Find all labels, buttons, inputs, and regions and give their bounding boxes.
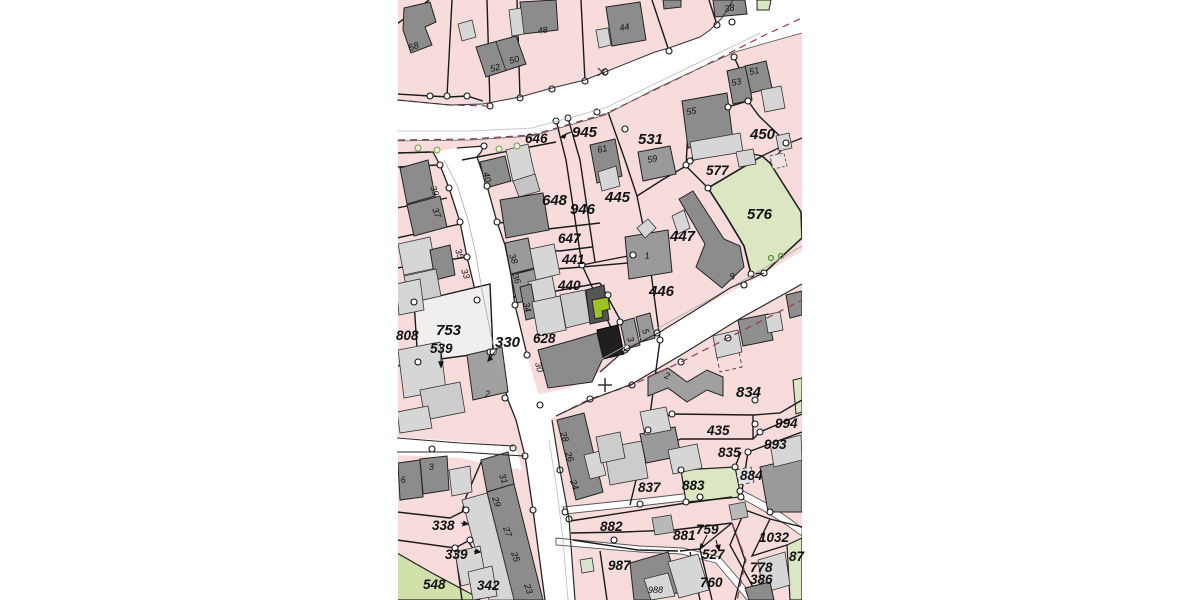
svg-text:441: 441 [561,252,585,267]
svg-text:539: 539 [430,341,453,356]
svg-text:577: 577 [706,163,730,178]
svg-text:3: 3 [428,462,434,472]
svg-text:883: 883 [682,478,705,493]
svg-text:837: 837 [638,480,662,495]
svg-text:342: 342 [477,578,500,593]
svg-text:44: 44 [619,21,631,33]
svg-text:753: 753 [436,322,462,339]
svg-text:61: 61 [596,143,608,155]
svg-text:338: 338 [432,518,455,533]
svg-text:946: 946 [570,201,596,218]
svg-text:48: 48 [537,25,548,36]
svg-text:759: 759 [696,522,719,537]
svg-text:834: 834 [736,384,762,401]
svg-text:576: 576 [747,206,773,223]
svg-text:882: 882 [600,519,623,534]
svg-text:386: 386 [750,572,773,587]
svg-text:760: 760 [700,575,723,590]
svg-text:648: 648 [542,192,568,209]
svg-text:548: 548 [423,577,446,592]
svg-text:446: 446 [648,283,675,300]
svg-text:440: 440 [557,278,581,293]
svg-text:987: 987 [608,558,632,573]
svg-text:59: 59 [646,153,658,165]
svg-text:447: 447 [669,228,696,245]
svg-text:835: 835 [718,445,741,460]
svg-text:330: 330 [495,334,521,351]
svg-text:445: 445 [604,189,631,206]
svg-text:527: 527 [702,547,726,562]
svg-text:647: 647 [558,231,582,246]
svg-text:6: 6 [400,475,406,485]
svg-text:53: 53 [730,76,742,88]
svg-text:1032: 1032 [759,530,790,545]
svg-text:339: 339 [445,547,468,562]
svg-text:994: 994 [775,416,798,431]
svg-text:87: 87 [789,549,806,564]
svg-text:2: 2 [484,389,490,399]
svg-text:881: 881 [673,528,696,543]
svg-text:450: 450 [749,126,776,143]
svg-text:993: 993 [764,437,787,452]
svg-text:628: 628 [533,331,556,346]
svg-text:945: 945 [572,124,598,141]
svg-text:884: 884 [740,468,763,483]
svg-text:51: 51 [748,65,760,77]
svg-text:435: 435 [706,423,730,438]
svg-text:531: 531 [638,131,663,148]
svg-text:988: 988 [648,585,663,595]
svg-text:808: 808 [396,328,419,343]
